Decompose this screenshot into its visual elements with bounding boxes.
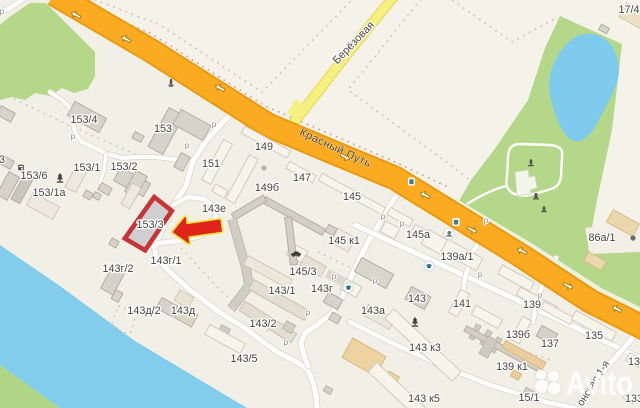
svg-text:139: 139 [523, 299, 541, 311]
svg-text:86а/1: 86а/1 [588, 232, 615, 244]
svg-text:153/1: 153/1 [73, 162, 100, 174]
svg-text:143е: 143е [202, 203, 226, 215]
svg-text:р: р [484, 216, 489, 225]
svg-text:143д: 143д [171, 305, 196, 317]
svg-text:3: 3 [0, 154, 5, 166]
svg-text:143г/2: 143г/2 [103, 263, 134, 275]
svg-text:143д/2: 143д/2 [127, 305, 160, 317]
svg-text:143г: 143г [311, 283, 333, 295]
svg-text:141: 141 [453, 298, 471, 310]
svg-text:143а: 143а [361, 305, 385, 317]
svg-text:139а/1: 139а/1 [440, 251, 473, 263]
svg-text:р: р [212, 120, 217, 129]
svg-text:135: 135 [585, 330, 603, 342]
svg-text:145а: 145а [406, 229, 430, 241]
svg-text:р: р [478, 270, 483, 279]
svg-text:15/1: 15/1 [518, 392, 539, 404]
svg-text:р: р [400, 219, 405, 228]
svg-text:143/5: 143/5 [230, 353, 257, 365]
svg-text:149: 149 [255, 141, 273, 153]
svg-text:р: р [71, 132, 76, 141]
svg-text:р: р [185, 141, 190, 150]
svg-text:р: р [0, 7, 5, 16]
svg-text:137: 137 [541, 338, 559, 350]
svg-text:145/3: 145/3 [289, 266, 316, 278]
svg-text:р: р [284, 338, 289, 347]
svg-text:р: р [538, 291, 543, 300]
svg-text:р: р [332, 272, 337, 281]
svg-text:р: р [306, 308, 311, 317]
svg-text:143г/1: 143г/1 [151, 255, 182, 267]
svg-text:153/1а: 153/1а [32, 187, 65, 199]
svg-text:143/1: 143/1 [268, 285, 295, 297]
svg-text:151: 151 [202, 158, 220, 170]
svg-text:153/2: 153/2 [110, 161, 137, 173]
svg-text:139 к1: 139 к1 [496, 361, 528, 373]
svg-text:143 к3: 143 к3 [409, 342, 441, 354]
svg-text:149б: 149б [255, 182, 279, 194]
svg-text:145 к1: 145 к1 [328, 235, 360, 247]
svg-text:153/6: 153/6 [20, 170, 47, 182]
svg-text:153/3: 153/3 [136, 219, 163, 231]
svg-text:17/4: 17/4 [618, 4, 639, 16]
svg-text:Avito: Avito [566, 365, 633, 402]
svg-text:143: 143 [408, 293, 426, 305]
svg-text:153/4: 153/4 [70, 114, 97, 126]
svg-text:147: 147 [293, 172, 311, 184]
svg-text:143/2: 143/2 [249, 318, 276, 330]
svg-text:р: р [381, 212, 386, 221]
svg-text:153: 153 [154, 123, 172, 135]
svg-text:143 к5: 143 к5 [408, 393, 440, 405]
svg-text:139б: 139б [506, 329, 530, 341]
svg-text:р: р [373, 276, 378, 285]
svg-text:145: 145 [343, 191, 361, 203]
